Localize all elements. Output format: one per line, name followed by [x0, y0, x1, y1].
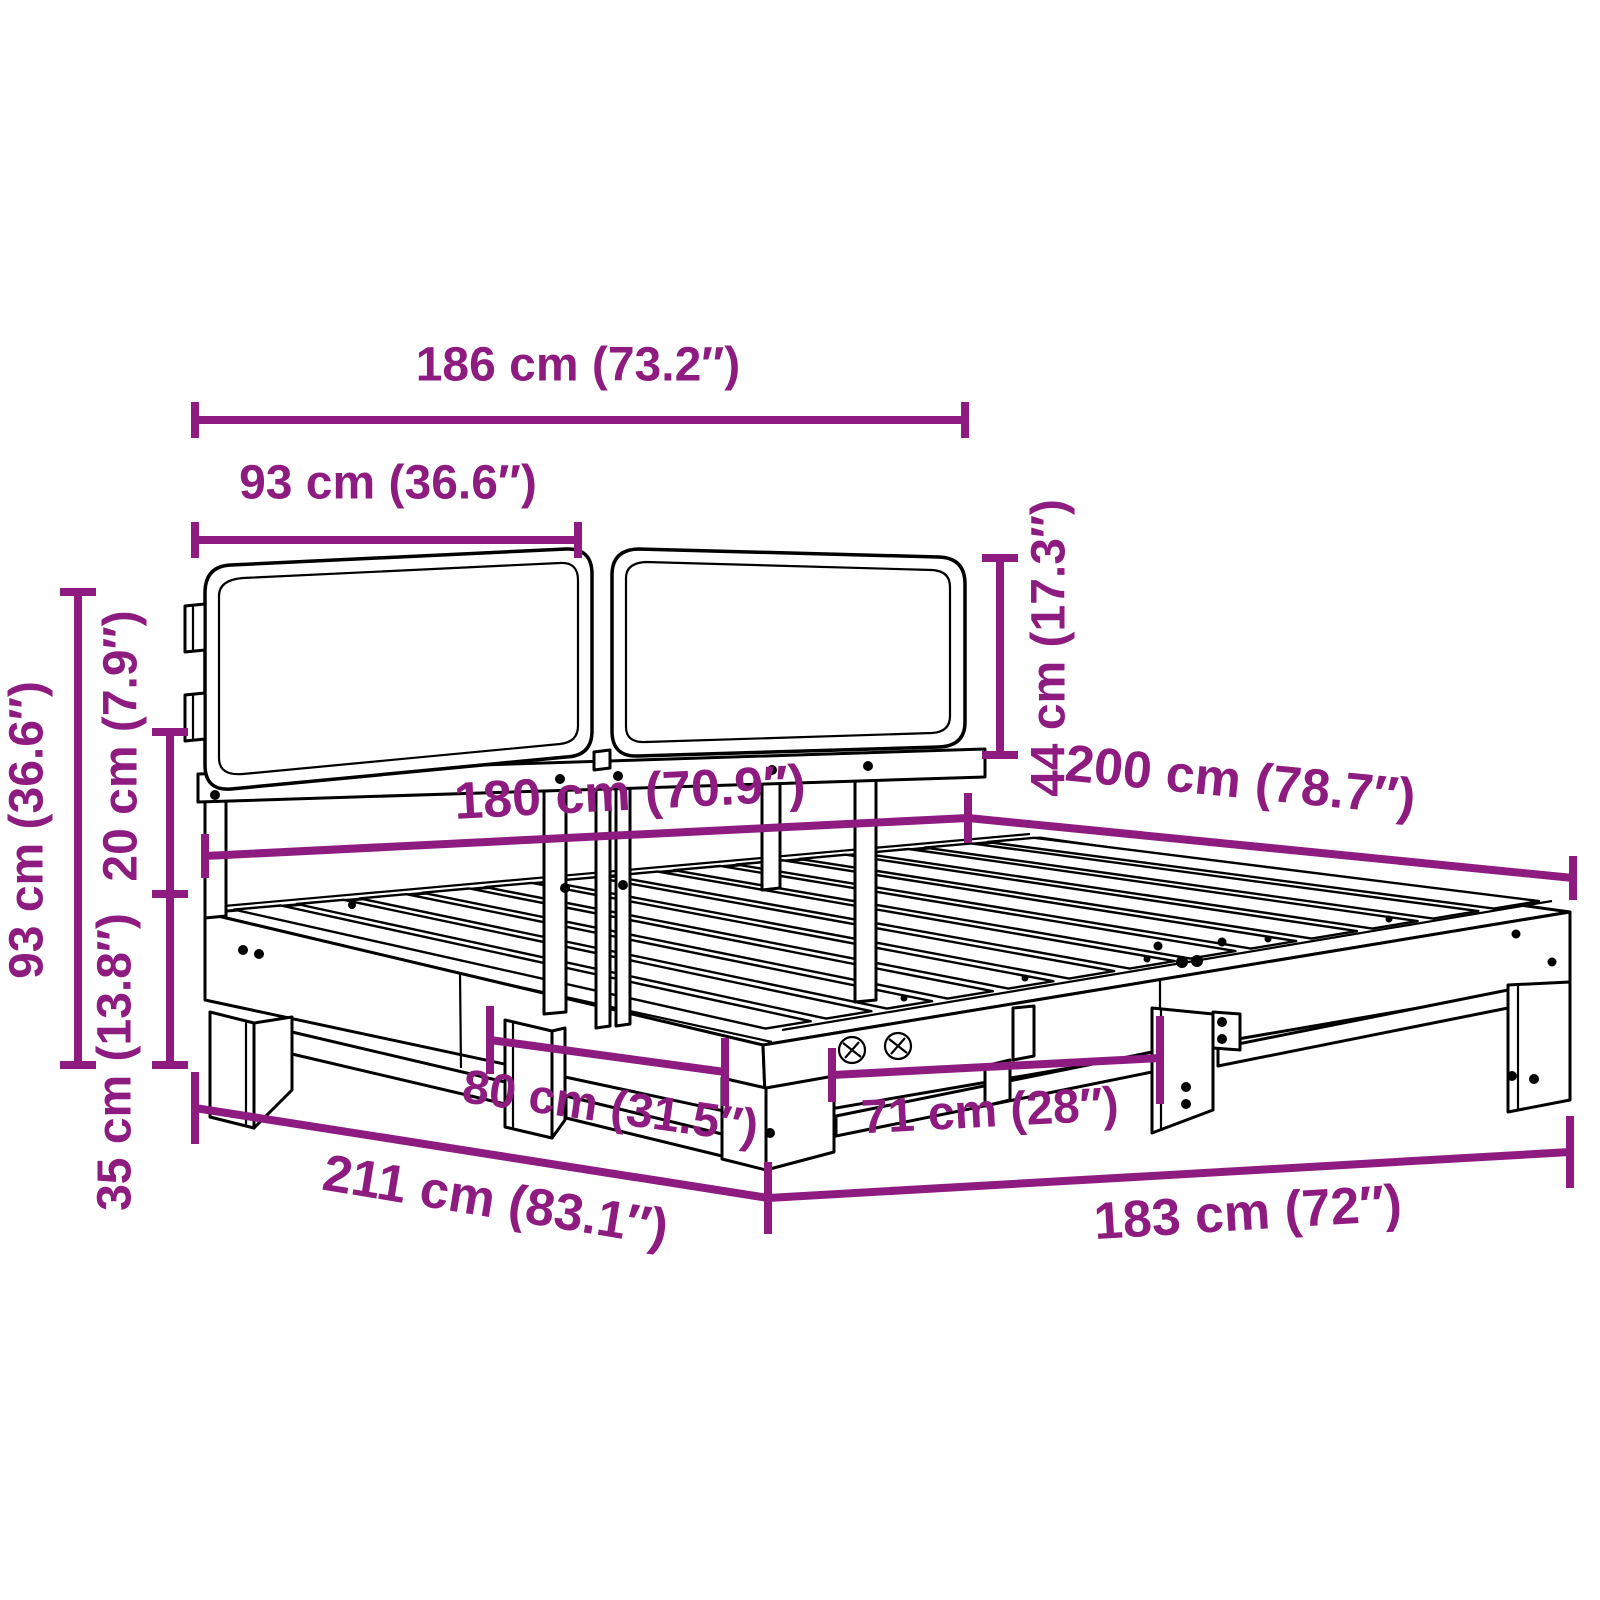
dimension-diagram: 186 cm (73.2″) 93 cm (36.6″) 44 cm (17.3…	[0, 0, 1600, 1600]
dim-label-headboard-total-height: 93 cm (36.6″)	[1, 681, 54, 979]
leg-foot-corner	[1507, 982, 1570, 1112]
dimension-headboard-width: 186 cm (73.2″)	[195, 339, 965, 438]
leg-foot-middle	[1152, 1008, 1240, 1133]
dim-label-rail-height: 20 cm (7.9″)	[95, 610, 148, 881]
side-rail-seam	[460, 973, 461, 1068]
inner-back-leg	[1013, 1006, 1034, 1060]
dimension-rail-and-platform-height: 20 cm (7.9″) 35 cm (13.8″)	[89, 610, 188, 1210]
dim-label-total-width: 183 cm (72″)	[1092, 1174, 1403, 1251]
dimension-headboard-total-height: 93 cm (36.6″)	[1, 592, 96, 1065]
dim-label-cushion-width: 93 cm (36.6″)	[239, 457, 537, 510]
bed-frame-diagram-canvas: 186 cm (73.2″) 93 cm (36.6″) 44 cm (17.3…	[0, 0, 1600, 1600]
dimension-cushion-height: 44 cm (17.3″)	[982, 499, 1076, 797]
dim-label-total-length: 211 cm (83.1″)	[319, 1144, 672, 1258]
cushion-tab-upper	[185, 604, 205, 652]
dim-label-headboard-width: 186 cm (73.2″)	[416, 339, 741, 392]
headboard-cushion-right	[612, 549, 965, 756]
headboard-cushion-left	[185, 549, 592, 789]
dim-label-bed-length: 200 cm (78.7″)	[1063, 734, 1419, 827]
dimension-cushion-width: 93 cm (36.6″)	[195, 457, 578, 558]
dim-label-platform-height: 35 cm (13.8″)	[89, 913, 142, 1211]
